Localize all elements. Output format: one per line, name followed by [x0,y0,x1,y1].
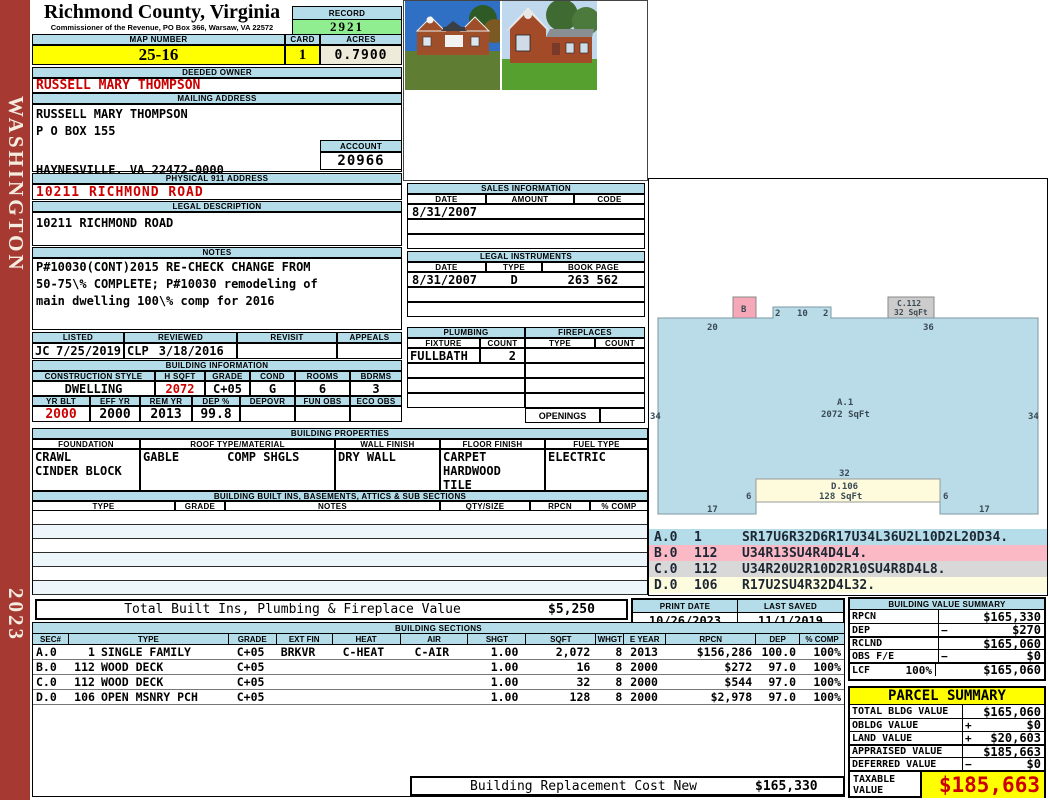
bvs-row: RPCN $165,330 [850,610,1044,623]
bvs-row: DEP − $270 [850,623,1044,636]
parcel-row: DEFERRED VALUE − $0 [850,757,1044,770]
listed-label: LISTED [32,332,124,343]
fuel-type-header: FUEL TYPE [545,439,648,449]
instrument-row: 8/31/2007 D 263 562 [407,272,645,287]
svg-text:32 SqFt: 32 SqFt [894,308,928,317]
sketch-panel: B C.112 32 SqFt 20 2 10 2 36 34 34 A.1 2… [648,178,1048,596]
appeals-value [337,343,402,359]
parcel-summary-label: PARCEL SUMMARY [850,688,1044,705]
mailing-line-2: P O BOX 155 [33,121,401,138]
floor-finish-header: FLOOR FINISH [440,439,545,449]
fireplaces-label: FIREPLACES [525,327,645,338]
section-row-d: D.0 106OPEN MSNRY PCH C+05 1.00 128 8 20… [33,690,844,705]
parcel-row: APPRAISED VALUE $185,663 [850,744,1044,757]
builtins-total-label: Total Built Ins, Plumbing & Fireplace Va… [37,602,548,617]
listed-date: 7/25/2019 [56,344,121,358]
physical-address-value: 10211 RICHMOND ROAD [32,184,402,200]
builtins-total-row: Total Built Ins, Plumbing & Fireplace Va… [35,599,628,620]
builtins-comp-header: % COMP [590,501,648,511]
svg-text:C.112: C.112 [897,299,921,308]
effyr-label: EFF YR [90,396,140,406]
svg-text:6: 6 [746,492,751,502]
builtins-qty-header: QTY/SIZE [440,501,530,511]
svg-text:32: 32 [839,469,850,479]
last-saved-label: LAST SAVED [738,600,843,613]
fuel-type-value: ELECTRIC [545,449,648,491]
instrument-row [407,302,645,317]
instrument-book-header: BOOK PAGE [542,262,645,272]
taxable-value-row: TAXABLE VALUE $185,663 [850,770,1044,798]
physical-address-label: PHYSICAL 911 ADDRESS [32,173,402,184]
notes-label: NOTES [32,247,402,258]
page-title: Richmond County, Virginia [34,2,290,23]
instrument-row [407,287,645,302]
map-number-label: MAP NUMBER [32,34,285,45]
account-value: 20966 [320,152,402,170]
svg-text:2072 SqFt: 2072 SqFt [821,410,870,420]
builtins-rpcn-header: RPCN [530,501,590,511]
deeded-owner-label: DEEDED OWNER [32,67,402,78]
instrument-book-value: 263 562 [542,273,644,287]
roof-type-value: GABLE [141,450,179,490]
roof-header: ROOF TYPE/MATERIAL [140,439,335,449]
cond-label: COND [250,371,295,381]
svg-text:2: 2 [775,309,780,319]
grade-value: C+05 [205,381,250,396]
construction-style-label: CONSTRUCTION STYLE [32,371,155,381]
wall-finish-header: WALL FINISH [335,439,440,449]
remyr-label: REM YR [140,396,192,406]
replacement-cost-value: $165,330 [755,779,843,794]
svg-text:34: 34 [1028,412,1039,422]
reviewed-value: CLP 3/18/2016 [124,343,237,359]
yrblt-label: YR BLT [32,396,90,406]
legal-description-label: LEGAL DESCRIPTION [32,201,402,212]
openings-value [600,408,645,423]
svg-text:6: 6 [943,492,948,502]
remyr-value: 2013 [140,406,192,422]
instrument-date-value: 8/31/2007 [408,273,486,287]
bvs-row: RCLND $165,060 [850,636,1044,649]
legal-description-value: 10211 RICHMOND ROAD [32,212,402,246]
instrument-type-header: TYPE [486,262,542,272]
svg-text:A.1: A.1 [837,398,853,408]
building-sections-label: BUILDING SECTIONS [33,623,844,634]
svg-text:17: 17 [979,505,990,515]
effyr-value: 2000 [90,406,140,422]
sidebar: WASHINGTON 2023 [0,0,30,800]
svg-text:10: 10 [797,309,808,319]
notes-line: 50-75\% COMPLETE; P#10030 remodeling of [33,276,401,293]
vector-row-a: A.01SR17U6R32D6R17U34L36U2L10D2L20D34. [649,529,1047,545]
sales-information-label: SALES INFORMATION [407,183,645,194]
instrument-type-value: D [486,273,542,287]
sidebar-year-label: 2023 [3,588,28,642]
svg-text:B: B [741,305,747,315]
fireplace-count-header: COUNT [595,338,645,348]
cond-value: G [250,381,295,396]
wall-finish-value: DRY WALL [335,449,440,491]
sales-date-header: DATE [407,194,486,204]
svg-text:34: 34 [650,412,661,422]
bvs-row-label: RPCN [850,610,939,623]
building-sections-table: BUILDING SECTIONS SEC# TYPE GRADE EXT FI… [32,622,845,797]
section-row-b: B.0 112WOOD DECK C+05 1.00 16 8 2000 $27… [33,660,844,675]
parcel-row: LAND VALUE + $20,603 [850,731,1044,744]
svg-text:2: 2 [823,309,828,319]
foundation-value: CRAWL CINDER BLOCK [32,449,140,491]
notes-box: P#10030(CONT)2015 RE-CHECK CHANGE FROM 5… [32,258,402,330]
taxable-value-label: TAXABLE VALUE [850,772,922,798]
reviewed-date: 3/18/2016 [159,344,224,358]
fixture-count-value: 2 [480,348,525,363]
builtins-total-value: $5,250 [548,602,626,617]
mailing-address-label: MAILING ADDRESS [32,93,402,104]
depovr-value [240,406,295,422]
bdrms-value: 3 [350,381,402,396]
ecoobs-label: ECO OBS [350,396,402,406]
builtins-notes-header: NOTES [225,501,440,511]
svg-text:20: 20 [707,323,718,333]
parcel-row: OBLDG VALUE + $0 [850,718,1044,731]
card-value: 1 [285,45,320,65]
hsqft-value: 2072 [155,381,205,396]
building-information-label: BUILDING INFORMATION [32,360,402,371]
builtins-type-header: TYPE [32,501,175,511]
funobs-label: FUN OBS [295,396,350,406]
map-number-value: 25-16 [32,45,285,65]
vector-row-d: D.0106R17U2SU4R32D4L32. [649,577,1047,593]
appeals-label: APPEALS [337,332,402,343]
sales-date-value: 8/31/2007 [408,205,489,219]
ecoobs-value [350,406,402,422]
section-row-c: C.0 112WOOD DECK C+05 1.00 32 8 2000 $54… [33,675,844,690]
print-date-label: PRINT DATE [633,600,737,613]
construction-style-value: DWELLING [32,381,155,396]
parcel-row: TOTAL BLDG VALUE $165,060 [850,705,1044,718]
building-value-summary-label: BUILDING VALUE SUMMARY [850,599,1044,610]
listed-value: JC 7/25/2019 [32,343,124,359]
revisit-value [237,343,337,359]
svg-text:17: 17 [707,505,718,515]
roof-value: GABLE COMP SHGLS [140,449,335,491]
rooms-label: ROOMS [295,371,350,381]
builtins-label: BUILDING BUILT INS, BASEMENTS, ATTICS & … [32,491,648,501]
card-label: CARD [285,34,320,45]
fixture-header: FIXTURE [407,338,480,348]
vector-row-b: B.0112U34R13SU4R4D4L4. [649,545,1047,561]
builtins-empty-rows [32,511,648,595]
sales-row [407,219,645,234]
notes-line: main dwelling 100\% comp for 2016 [33,293,401,310]
floor-finish-value: CARPET HARDWOOD TILE [440,449,545,491]
bvs-row: OBS F/E − $0 [850,649,1044,662]
builtins-grade-header: GRADE [175,501,225,511]
sidebar-district-label: WASHINGTON [3,96,28,273]
section-row-a: A.0 1SINGLE FAMILY C+05 BRKVR C-HEAT C-A… [33,645,844,660]
fireplace-row [525,348,645,363]
roof-material-value: COMP SHGLS [227,450,299,490]
revisit-label: REVISIT [237,332,337,343]
svg-text:D.106: D.106 [831,482,858,492]
sales-amount-header: AMOUNT [486,194,574,204]
legal-instruments-label: LEGAL INSTRUMENTS [407,251,645,262]
plumbing-label: PLUMBING [407,327,525,338]
acres-value: 0.7900 [320,45,402,65]
building-sketch: B C.112 32 SqFt 20 2 10 2 36 34 34 A.1 2… [649,179,1047,529]
taxable-value-amount: $185,663 [922,772,1044,798]
rooms-value: 6 [295,381,350,396]
fixture-count-header: COUNT [480,338,525,348]
replacement-cost-row: Building Replacement Cost New $165,330 [410,776,845,796]
grade-label: GRADE [205,371,250,381]
hsqft-label: H SQFT [155,371,205,381]
building-properties-label: BUILDING PROPERTIES [32,428,648,439]
notes-line: P#10030(CONT)2015 RE-CHECK CHANGE FROM [33,259,401,276]
mailing-line-1: RUSSELL MARY THOMPSON [33,105,401,121]
record-value: 2921 [293,20,401,34]
reviewed-by: CLP [127,344,149,358]
record-box: RECORD 2921 [292,6,402,34]
funobs-value [295,406,350,422]
property-photo-1 [405,1,500,90]
sales-row: 8/31/2007 [407,204,645,219]
depovr-label: DEPOVR [240,396,295,406]
fireplace-type-header: TYPE [525,338,595,348]
dep-value: 99.8 [192,406,240,422]
dep-label: DEP % [192,396,240,406]
account-label: ACCOUNT [320,140,402,152]
svg-text:128 SqFt: 128 SqFt [819,492,862,502]
replacement-cost-label: Building Replacement Cost New [412,779,755,794]
listed-by: JC [35,344,49,358]
svg-text:36: 36 [923,323,934,333]
account-box: ACCOUNT 20966 [320,140,402,171]
vector-row-c: C.0112U34R20U2R10D2R10SU4R8D4L8. [649,561,1047,577]
openings-label: OPENINGS [525,408,600,423]
foundation-header: FOUNDATION [32,439,140,449]
sales-code-header: CODE [574,194,645,204]
county-title-block: Richmond County, Virginia Commissioner o… [34,2,290,34]
parcel-summary: PARCEL SUMMARY TOTAL BLDG VALUE $165,060… [848,686,1046,798]
sales-row [407,234,645,249]
bvs-row-lcf: LCF 100% $165,060 [850,662,1044,676]
deeded-owner-value: RUSSELL MARY THOMPSON [32,78,402,93]
fixture-value: FULLBATH [407,348,480,363]
yrblt-value: 2000 [32,406,90,422]
property-photo-2 [502,1,597,90]
bvs-row-value: $165,330 [953,610,1044,624]
bdrms-label: BDRMS [350,371,402,381]
acres-label: ACRES [320,34,402,45]
instrument-date-header: DATE [407,262,486,272]
commissioner-line: Commissioner of the Revenue, PO Box 366,… [34,23,290,32]
building-value-summary: BUILDING VALUE SUMMARY RPCN $165,330 DEP… [848,597,1046,681]
reviewed-label: REVIEWED [124,332,237,343]
building-sections-header-row: SEC# TYPE GRADE EXT FIN HEAT AIR SHGT SQ… [33,634,844,645]
